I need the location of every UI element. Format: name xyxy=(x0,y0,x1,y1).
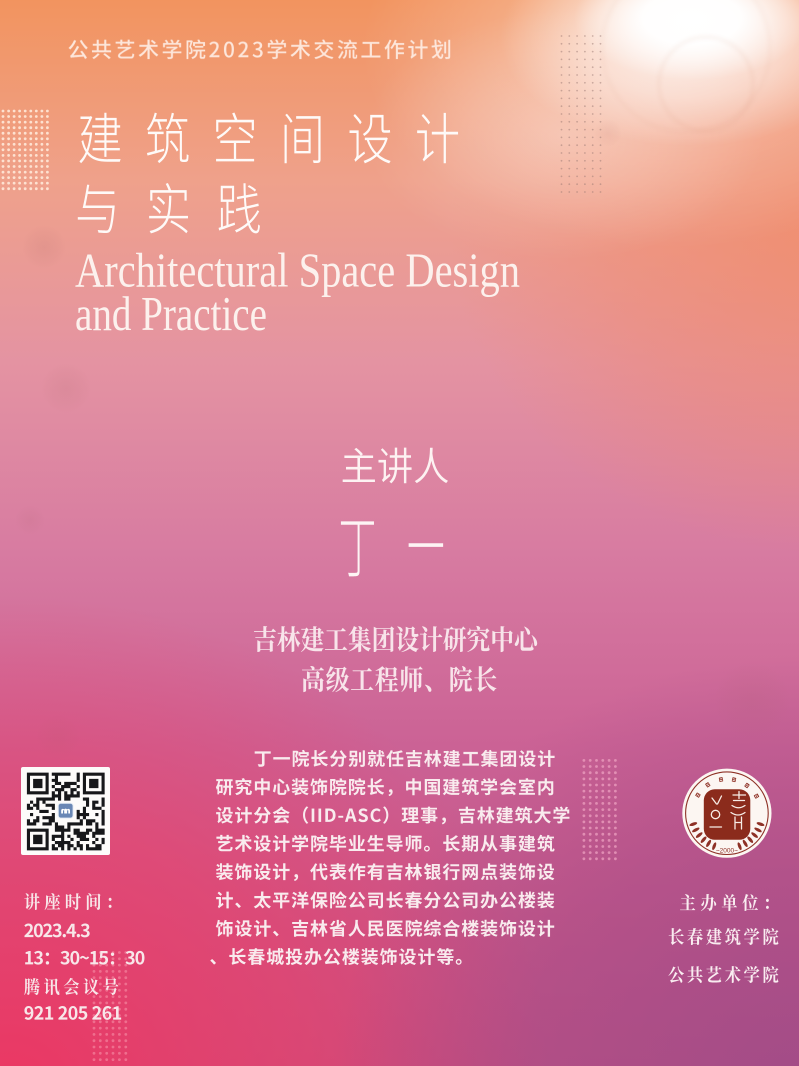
svg-text:and Practice: and Practice xyxy=(75,286,267,341)
svg-text:~2000~: ~2000~ xyxy=(716,848,738,855)
